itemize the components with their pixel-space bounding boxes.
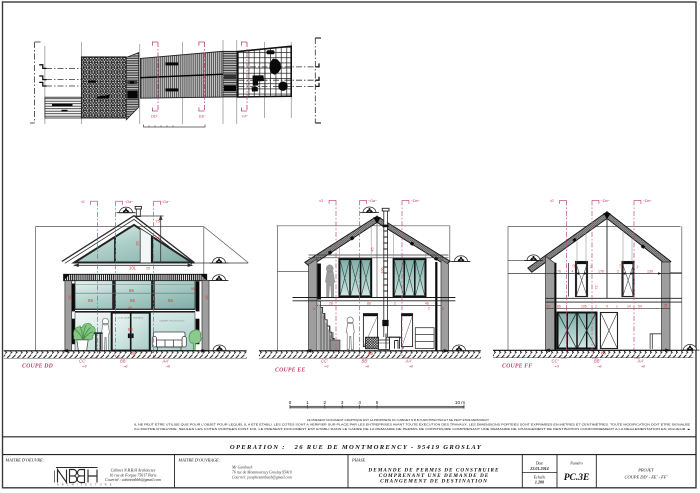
- svg-text:34: 34: [664, 304, 668, 308]
- svg-text:105: 105: [581, 304, 587, 308]
- svg-text:28: 28: [329, 301, 333, 305]
- svg-text:PC.3E: PC.3E: [564, 473, 590, 483]
- svg-text:2: 2: [617, 269, 619, 273]
- svg-text:2: 2: [394, 301, 396, 305]
- svg-text:100: 100: [381, 268, 385, 274]
- svg-text:MAITRE D'OUVRAGE:: MAITRE D'OUVRAGE:: [178, 457, 221, 462]
- svg-text:16 rue de Forgue 75017 Paris: 16 rue de Forgue 75017 Paris: [109, 473, 157, 477]
- svg-text:2: 2: [637, 265, 639, 269]
- svg-text:45: 45: [371, 248, 375, 252]
- svg-text:‹G: ‹G: [319, 199, 323, 203]
- svg-text:CHANGEMENT DE DESTINATION: CHANGEMENT DE DESTINATION: [380, 479, 488, 485]
- svg-text:AA': AA': [637, 359, 645, 364]
- svg-text:76 rue de Montmorency Groslay: 76 rue de Montmorency Groslay 95410: [232, 471, 292, 475]
- svg-text:Courriel : cabinetnbbh@gmail.c: Courriel : cabinetnbbh@gmail.com: [105, 478, 161, 482]
- svg-text:CC': CC': [79, 359, 86, 364]
- svg-text:Courriel: josephezambach@gmail: Courriel: josephezambach@gmail.com: [232, 475, 292, 479]
- svg-text:45: 45: [205, 296, 209, 300]
- svg-text:1.200: 1.200: [535, 479, 544, 484]
- svg-text:130: 130: [647, 269, 653, 273]
- svg-text:⇥9: ⇥9: [597, 365, 602, 369]
- svg-text:Cabinet N.B.B.H Architectes: Cabinet N.B.B.H Architectes: [111, 469, 156, 473]
- svg-text:12: 12: [572, 264, 576, 268]
- svg-text:4: 4: [572, 269, 574, 273]
- svg-text:45: 45: [128, 306, 132, 310]
- svg-text:‹G: ‹G: [550, 199, 554, 203]
- svg-text:Mr Gambach: Mr Gambach: [231, 466, 252, 470]
- svg-text:BB': BB': [120, 359, 127, 364]
- svg-text:⇤9: ⇤9: [82, 365, 87, 369]
- svg-text:⇥9: ⇥9: [166, 365, 171, 369]
- svg-text:14: 14: [627, 304, 631, 308]
- svg-text:176: 176: [598, 269, 604, 273]
- svg-text:⇥9: ⇥9: [409, 365, 414, 369]
- svg-text:2: 2: [324, 400, 327, 405]
- svg-text:DD': DD': [151, 114, 158, 119]
- svg-text:−Da−: −Da−: [601, 199, 611, 203]
- svg-text:LE PRESENT DOCUMENT GRAPHIQUE: LE PRESENT DOCUMENT GRAPHIQUE EST LA PRO…: [307, 419, 490, 422]
- svg-text:⇥9: ⇥9: [123, 365, 128, 369]
- svg-text:⇥9: ⇥9: [641, 365, 646, 369]
- svg-text:85: 85: [130, 298, 135, 303]
- svg-text:4: 4: [358, 400, 361, 405]
- svg-text:76: 76: [557, 269, 561, 273]
- svg-text:95: 95: [191, 287, 195, 291]
- svg-text:Numéro: Numéro: [569, 462, 582, 466]
- svg-text:4: 4: [606, 304, 608, 308]
- svg-text:⇤9: ⇤9: [555, 365, 560, 369]
- svg-text:2: 2: [428, 307, 430, 311]
- svg-text:CC': CC': [552, 359, 559, 364]
- svg-text:PHASE: PHASE: [351, 457, 366, 462]
- svg-text:5: 5: [376, 400, 379, 405]
- svg-text:45: 45: [68, 296, 72, 300]
- svg-text:46: 46: [425, 301, 429, 305]
- svg-text:−Da−: −Da−: [161, 200, 171, 204]
- svg-text:86: 86: [557, 304, 561, 308]
- svg-text:12: 12: [619, 264, 623, 268]
- svg-text:⇥9: ⇥9: [365, 365, 370, 369]
- svg-text:PROJET: PROJET: [637, 467, 654, 472]
- svg-text:8: 8: [313, 307, 315, 311]
- svg-text:IL NE PEUT ETRE UTILISE QUE PO: IL NE PEUT ETRE UTILISE QUE POUR L'OBJET…: [134, 423, 691, 426]
- svg-text:25: 25: [146, 267, 150, 271]
- svg-text:1: 1: [616, 304, 618, 308]
- svg-text:COUPE EE: COUPE EE: [275, 368, 305, 374]
- svg-text:2: 2: [595, 304, 597, 308]
- svg-text:−Da−: −Da−: [124, 200, 134, 204]
- svg-text:A R C H I T E C T U R E: A R C H I T E C T U R E: [57, 484, 113, 487]
- svg-text:‹G: ‹G: [81, 200, 85, 204]
- svg-text:20: 20: [546, 304, 550, 308]
- svg-text:8: 8: [442, 307, 444, 311]
- svg-text:Date: Date: [535, 462, 544, 466]
- svg-text:AU MAITRE D'OEUVRE. SEULES LES: AU MAITRE D'OEUVRE. SEULES LES COTES POR…: [134, 428, 691, 431]
- svg-text:⇤9: ⇤9: [324, 365, 329, 369]
- svg-text:CC': CC': [321, 359, 328, 364]
- svg-text:MAITRE D'OEUVRE:: MAITRE D'OEUVRE:: [5, 457, 45, 462]
- svg-text:85: 85: [168, 298, 173, 303]
- svg-text:3: 3: [341, 400, 344, 405]
- svg-text:94: 94: [638, 304, 642, 308]
- svg-text:85: 85: [88, 298, 93, 303]
- svg-text:−Da−: −Da−: [368, 199, 378, 203]
- svg-text:75: 75: [156, 219, 161, 224]
- svg-text:58: 58: [128, 327, 133, 332]
- svg-text:COUPE DD' - EE' - FF': COUPE DD' - EE' - FF': [625, 474, 668, 479]
- svg-text:EE': EE': [199, 114, 205, 119]
- svg-text:10 m: 10 m: [455, 400, 465, 405]
- svg-text:COUPE DD: COUPE DD: [22, 364, 54, 370]
- svg-text:−Da−: −Da−: [411, 199, 421, 203]
- svg-text:AA': AA': [162, 359, 170, 364]
- svg-text:OPERATION : 26 RUE DE MONTMO: OPERATION : 26 RUE DE MONTMORENCY - 9541…: [230, 444, 482, 451]
- svg-text:82: 82: [135, 240, 140, 245]
- svg-text:COULISSANT VANTAUX: COULISSANT VANTAUX: [117, 317, 144, 320]
- svg-text:101: 101: [129, 266, 137, 271]
- svg-text:1: 1: [306, 400, 309, 405]
- svg-text:86: 86: [129, 288, 134, 293]
- svg-text:BB': BB': [594, 359, 601, 364]
- svg-text:88: 88: [367, 301, 371, 305]
- svg-text:22.01.2014: 22.01.2014: [529, 466, 548, 471]
- svg-text:AA': AA': [405, 359, 413, 364]
- svg-text:−Da−: −Da−: [643, 199, 653, 203]
- svg-text:0: 0: [289, 400, 292, 405]
- svg-text:CANAPE SEJOUR RDC: CANAPE SEJOUR RDC: [159, 320, 185, 323]
- svg-text:COUPE FF: COUPE FF: [502, 364, 532, 370]
- svg-text:FF': FF': [242, 114, 248, 119]
- svg-text:72: 72: [595, 286, 599, 290]
- svg-text:BB': BB': [362, 359, 369, 364]
